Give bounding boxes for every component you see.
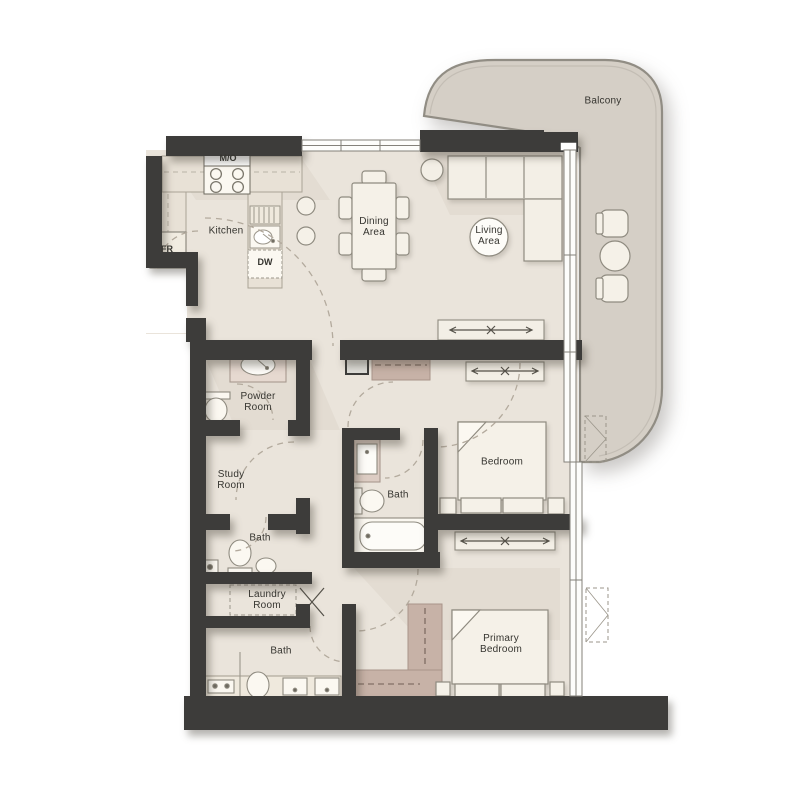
floor-plan: Balcony M/O Kitchen FR DW Dining Area Li… bbox=[0, 0, 800, 800]
nightstand bbox=[440, 498, 456, 514]
balcony-chair bbox=[600, 210, 628, 237]
primary-bed bbox=[436, 610, 564, 697]
coffee-table bbox=[470, 218, 508, 256]
nightstand bbox=[550, 682, 564, 696]
sofa bbox=[448, 156, 562, 199]
sofa-chaise bbox=[524, 199, 562, 261]
cooktop bbox=[204, 150, 250, 194]
nightstand bbox=[436, 682, 450, 696]
balcony-chair-back bbox=[596, 278, 603, 299]
balcony-chair bbox=[600, 275, 628, 302]
balcony-table bbox=[600, 241, 630, 271]
kitchen-peninsula-detail bbox=[248, 206, 282, 278]
floor-plan-svg bbox=[0, 0, 800, 800]
side-table bbox=[421, 159, 443, 181]
nightstand bbox=[548, 498, 564, 514]
balcony-chair-back bbox=[596, 213, 603, 234]
primary-closet-foot bbox=[352, 670, 442, 698]
bedroom-bed bbox=[440, 422, 564, 514]
exterior-notch bbox=[140, 267, 187, 333]
dining-table bbox=[352, 183, 396, 269]
